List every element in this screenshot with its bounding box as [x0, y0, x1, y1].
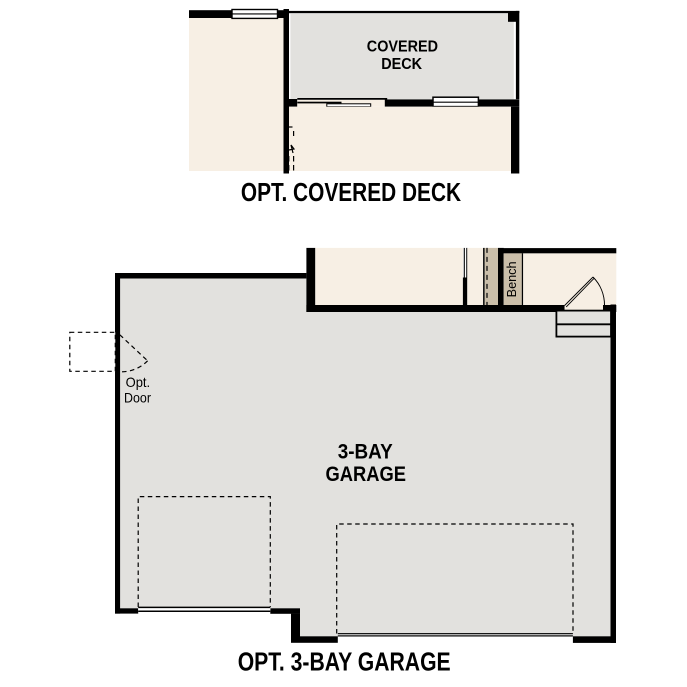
- svg-text:Door: Door: [124, 390, 151, 406]
- svg-text:GARAGE: GARAGE: [326, 463, 407, 486]
- svg-text:DECK: DECK: [381, 56, 422, 73]
- svg-text:Bench: Bench: [505, 261, 519, 297]
- svg-text:OPT. COVERED DECK: OPT. COVERED DECK: [241, 177, 461, 207]
- svg-text:OPT. 3-BAY GARAGE: OPT. 3-BAY GARAGE: [238, 647, 451, 677]
- svg-text:Opt.: Opt.: [126, 374, 151, 390]
- svg-text:COVERED: COVERED: [367, 39, 438, 56]
- svg-text:3-BAY: 3-BAY: [338, 440, 393, 463]
